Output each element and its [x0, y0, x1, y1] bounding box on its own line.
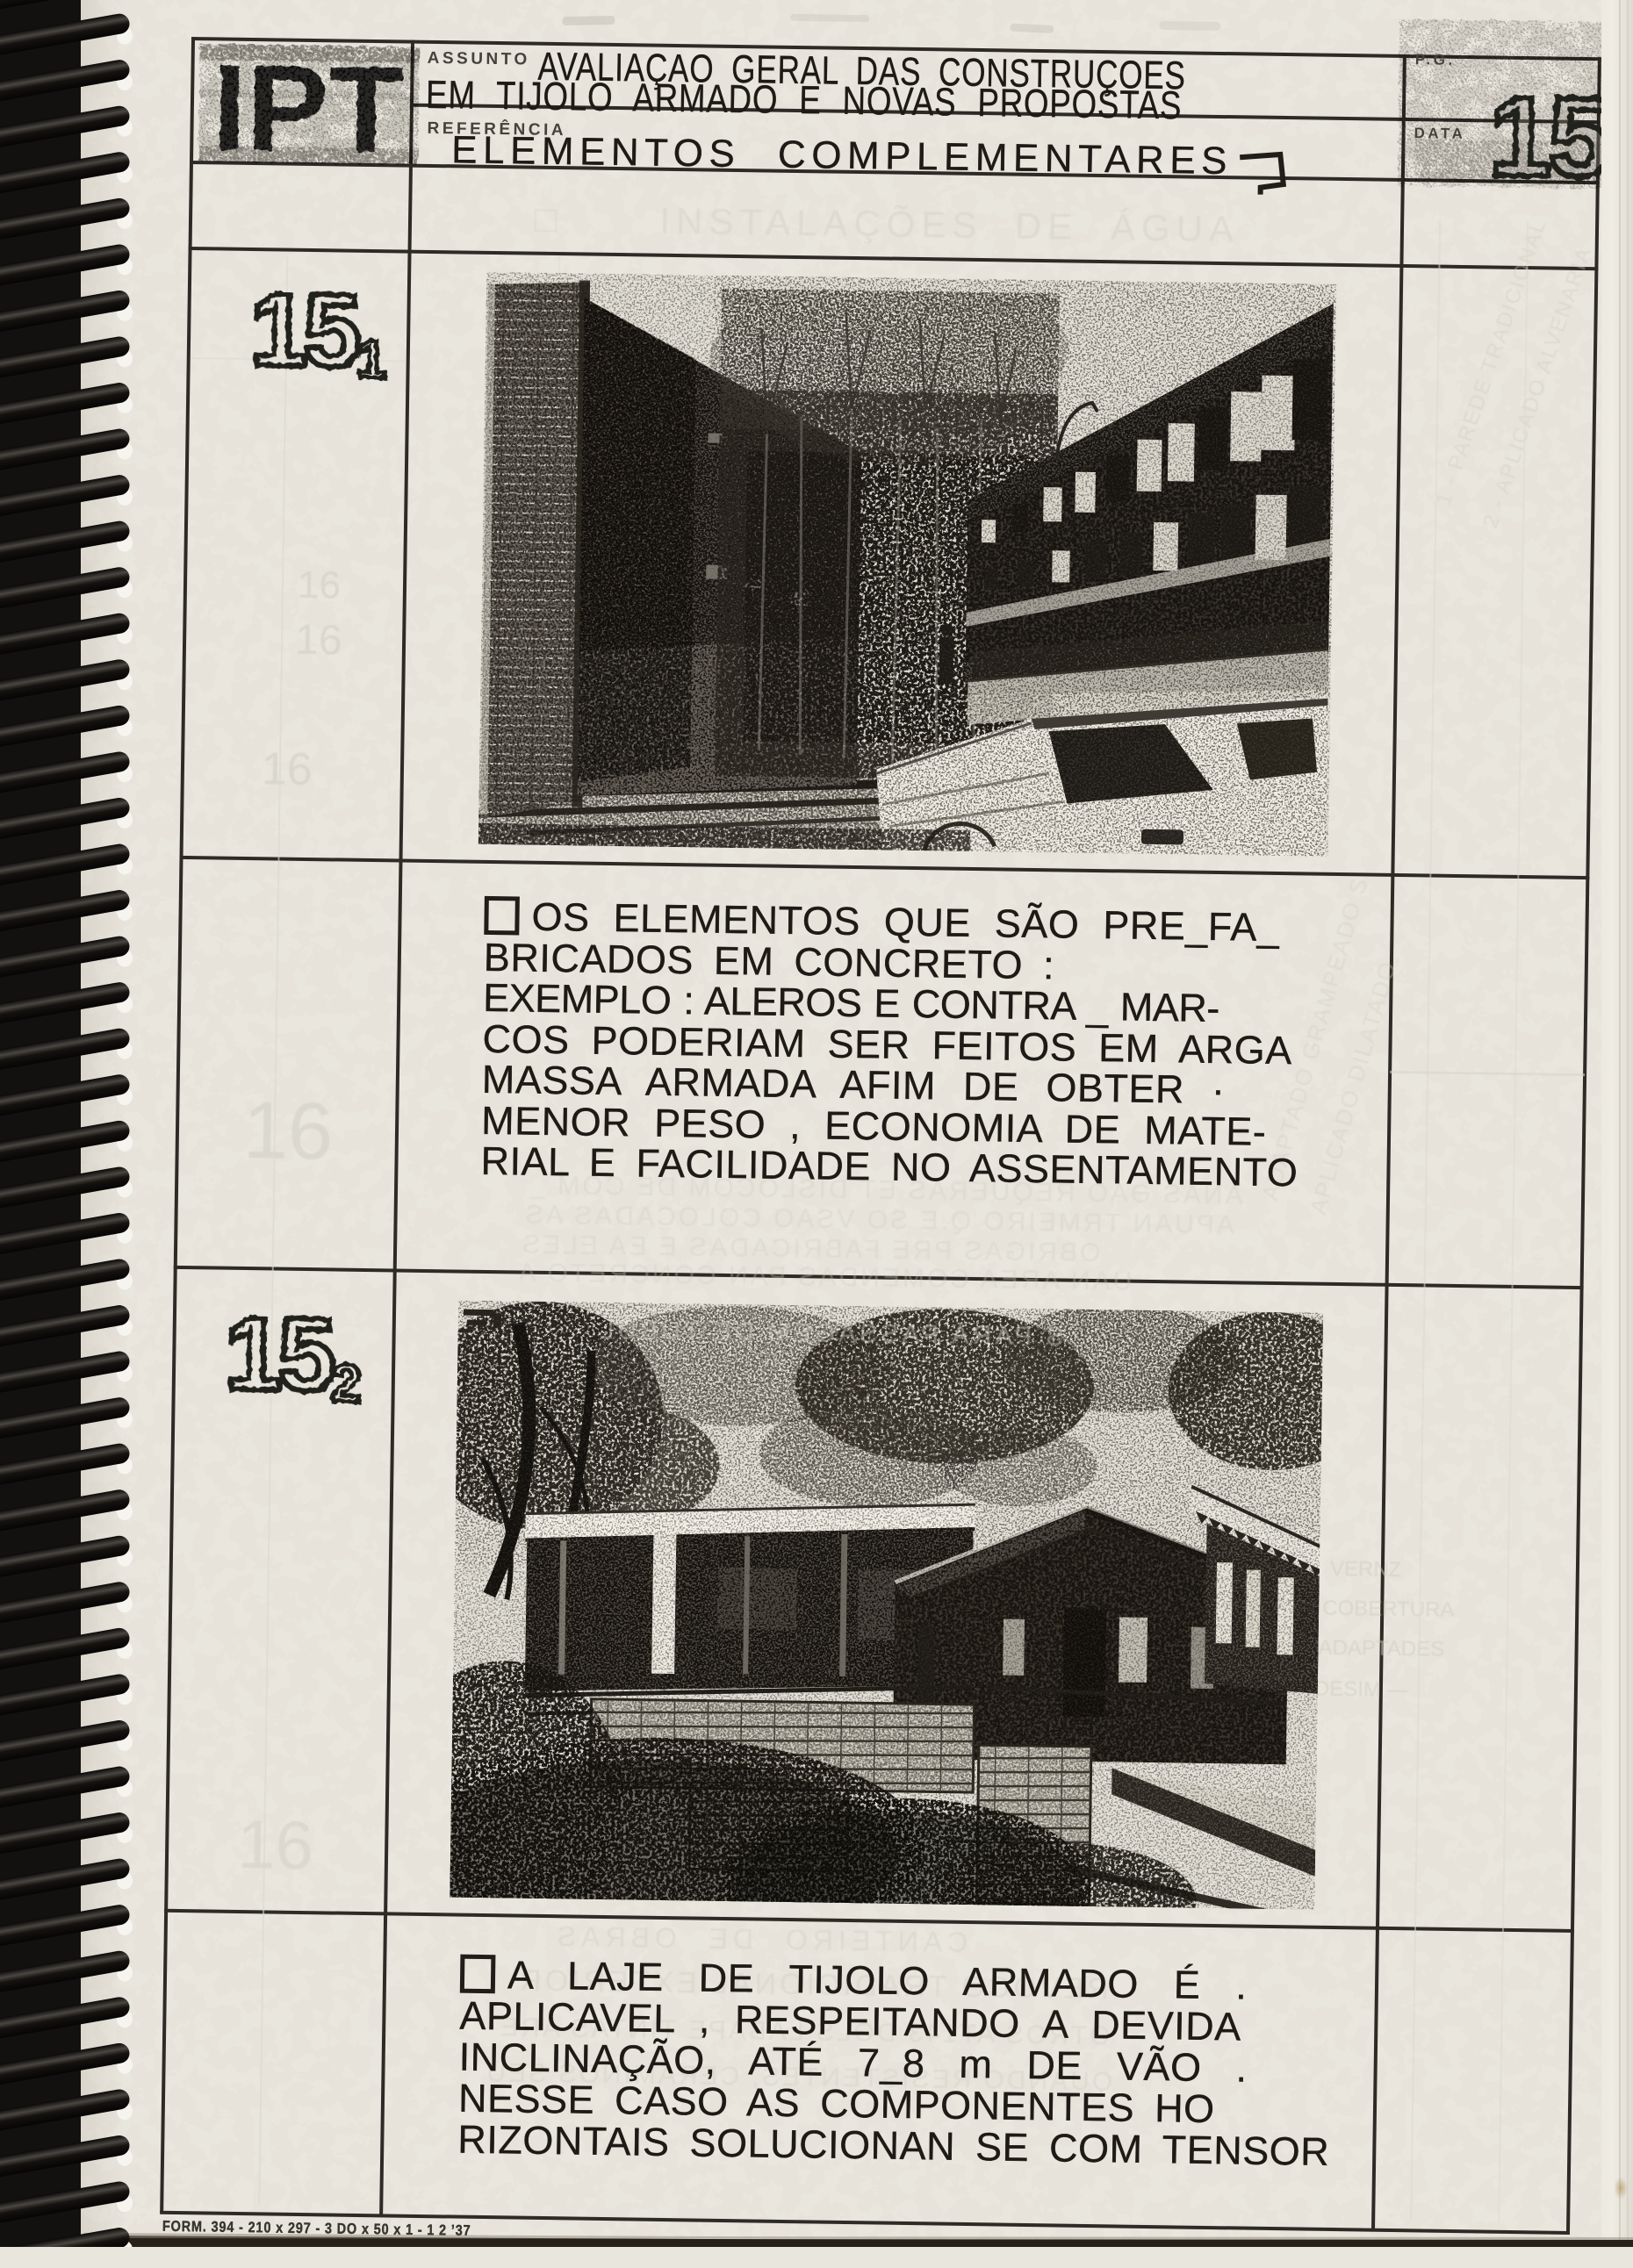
svg-text:15: 15	[224, 1296, 335, 1414]
svg-text:2: 2	[331, 1353, 361, 1412]
svg-text:IPT: IPT	[212, 39, 405, 169]
svg-text:15: 15	[249, 272, 360, 390]
svg-text:15: 15	[1489, 74, 1609, 201]
svg-text:1: 1	[356, 330, 386, 389]
